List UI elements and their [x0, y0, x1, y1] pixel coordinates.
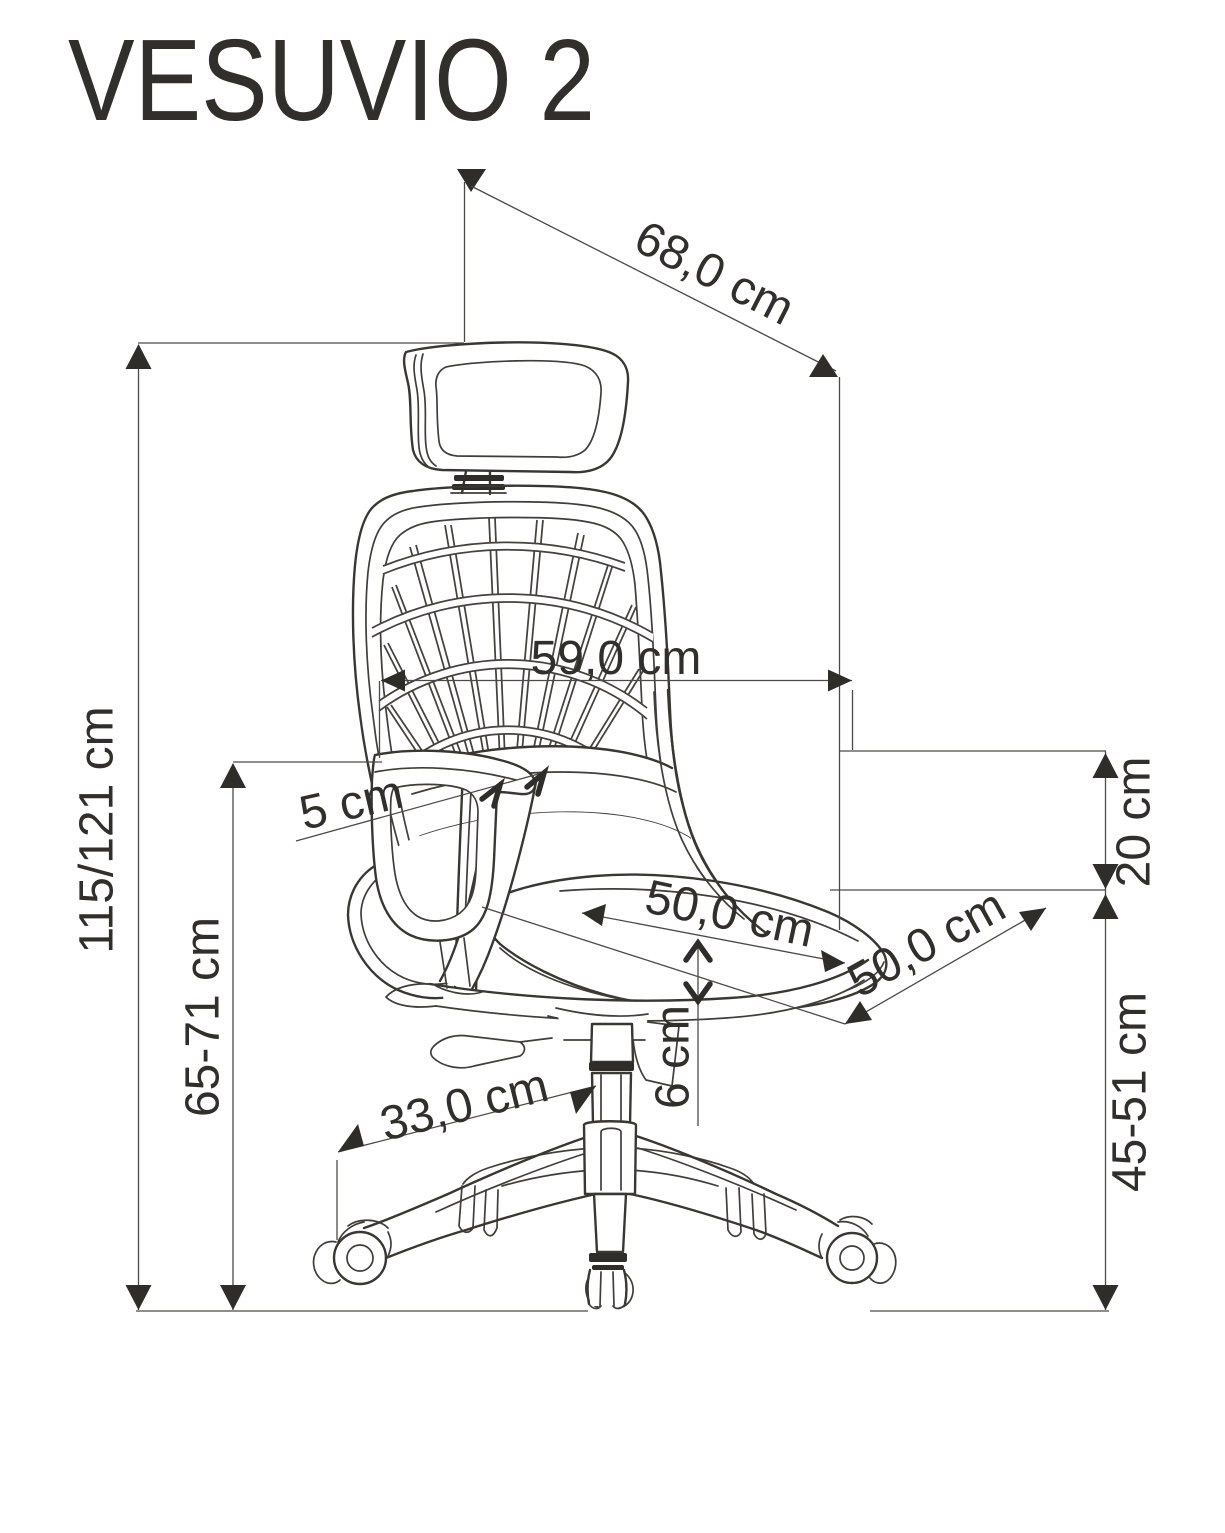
svg-text:65-71 cm: 65-71 cm	[177, 917, 230, 1117]
svg-text:6 cm: 6 cm	[647, 1005, 700, 1109]
svg-text:45-51 cm: 45-51 cm	[1104, 992, 1157, 1192]
svg-text:20 cm: 20 cm	[1108, 757, 1161, 888]
svg-text:115/121 cm: 115/121 cm	[71, 706, 124, 953]
svg-text:59,0 cm: 59,0 cm	[531, 632, 702, 685]
svg-text:VESUVIO 2: VESUVIO 2	[68, 15, 595, 145]
